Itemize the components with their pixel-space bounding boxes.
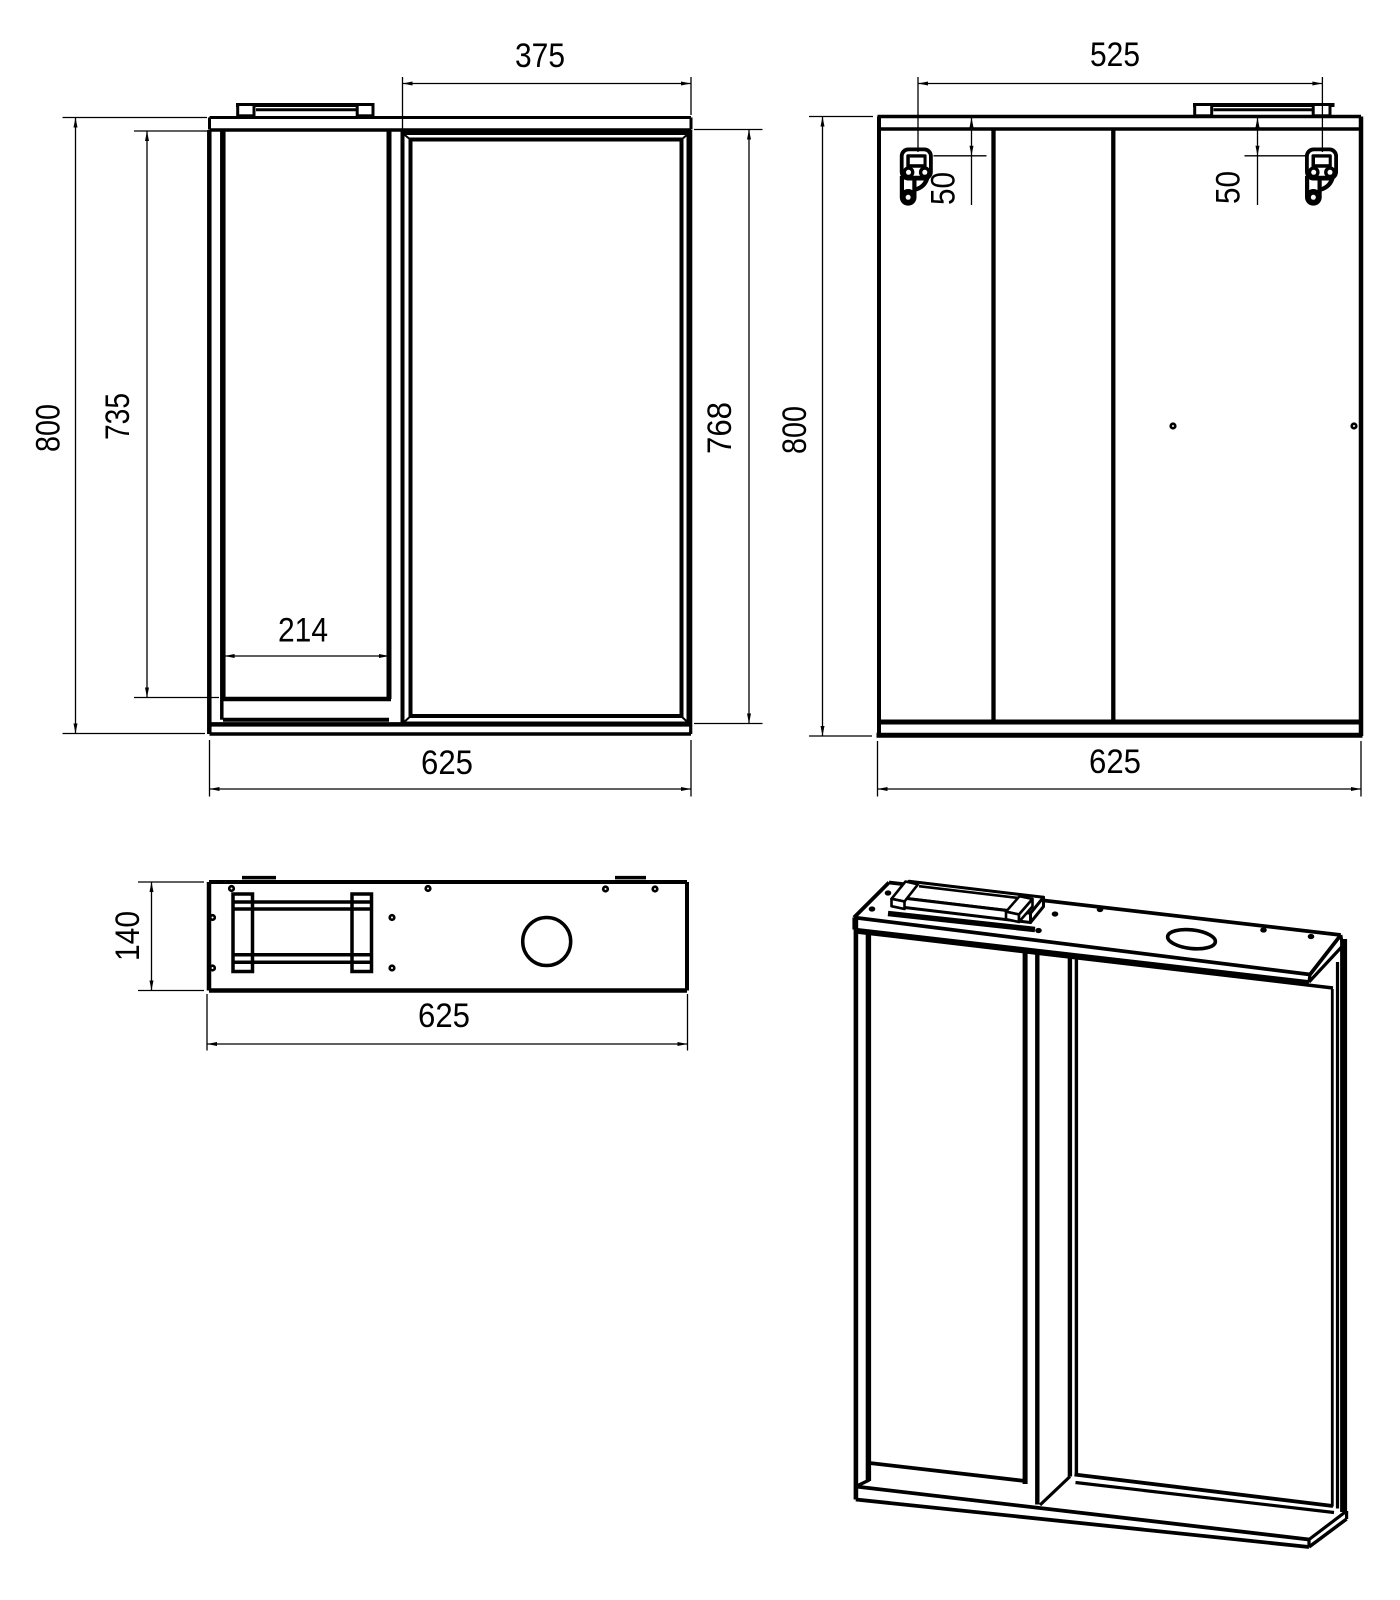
svg-text:768: 768 bbox=[701, 402, 739, 454]
svg-text:625: 625 bbox=[1089, 743, 1141, 781]
svg-text:50: 50 bbox=[925, 172, 963, 205]
svg-text:214: 214 bbox=[278, 612, 328, 650]
svg-text:525: 525 bbox=[1090, 36, 1140, 74]
svg-text:140: 140 bbox=[109, 911, 147, 961]
svg-text:50: 50 bbox=[1210, 171, 1248, 204]
svg-text:625: 625 bbox=[418, 997, 470, 1035]
svg-text:800: 800 bbox=[776, 406, 814, 454]
svg-text:625: 625 bbox=[421, 744, 473, 782]
svg-text:735: 735 bbox=[99, 393, 137, 440]
svg-text:375: 375 bbox=[515, 37, 565, 75]
svg-text:800: 800 bbox=[30, 404, 68, 452]
